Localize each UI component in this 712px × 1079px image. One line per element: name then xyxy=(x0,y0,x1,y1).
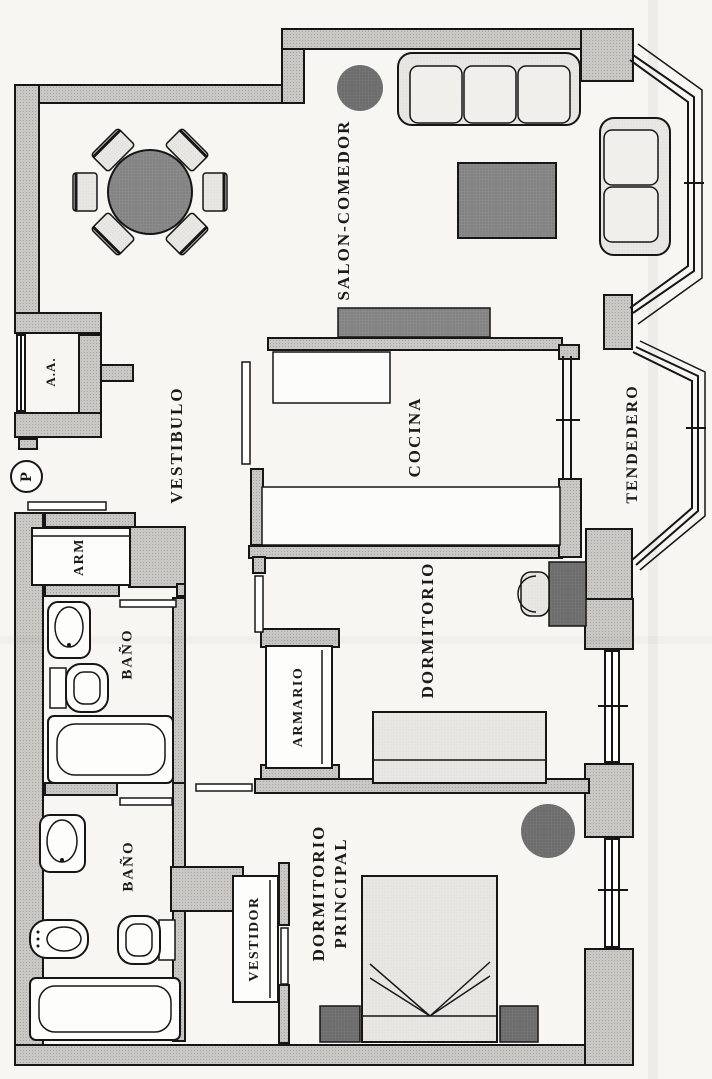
window-cocina-tendedero xyxy=(556,356,580,480)
label-aa-unit: A.A. xyxy=(43,357,59,386)
bathtub-symbol xyxy=(30,978,180,1040)
kitchen-counter-symbol xyxy=(273,352,390,403)
room-label-line: DORMITORIO xyxy=(308,825,330,962)
room-label-bano-upper: BAÑO xyxy=(120,628,137,679)
bathtub-symbol xyxy=(48,716,173,783)
toilet-symbol xyxy=(50,664,108,712)
label-vestidor: VESTIDOR xyxy=(247,896,263,981)
bed-double-symbol xyxy=(362,876,497,1042)
kitchen-counter-symbol xyxy=(262,487,560,545)
dining-table-symbol xyxy=(108,150,192,234)
entrance-badge: P xyxy=(10,460,43,493)
plant-symbol xyxy=(521,804,575,858)
room-label-cocina: COCINA xyxy=(405,397,425,478)
coffee-table-symbol xyxy=(458,163,556,238)
nightstand-symbol xyxy=(320,1006,360,1042)
label-arm-closet: ARM xyxy=(72,538,88,576)
sofa-two-seat-symbol xyxy=(600,118,670,255)
room-label-line: PRINCIPAL xyxy=(330,825,352,962)
sink-symbol xyxy=(40,815,85,872)
kitchen-sideboard-symbol xyxy=(338,308,490,337)
floor-plan: SALON-COMEDOR VESTIBULO COCINA TENDEDERO… xyxy=(0,0,712,1079)
room-label-bano-lower: BAÑO xyxy=(121,840,138,891)
nightstand-symbol xyxy=(500,1006,538,1042)
window-ticks xyxy=(598,706,628,890)
room-label-dormitorio-principal: DORMITORIO PRINCIPAL xyxy=(308,825,352,962)
room-label-salon-comedor: SALON-COMEDOR xyxy=(334,120,354,301)
desk-chair-symbol xyxy=(518,572,549,616)
toilet-symbol xyxy=(118,916,175,964)
label-armario: ARMARIO xyxy=(291,667,307,748)
bay-window-tendedero xyxy=(632,341,706,570)
plant-symbol xyxy=(337,65,383,111)
room-label-vestibulo: VESTIBULO xyxy=(167,386,187,503)
sink-symbol xyxy=(48,602,90,658)
furniture-layer xyxy=(0,0,712,1079)
room-label-dormitorio: DORMITORIO xyxy=(418,562,438,699)
bed-single-symbol xyxy=(373,712,546,783)
entrance-badge-letter: P xyxy=(18,472,36,482)
room-label-tendedero: TENDEDERO xyxy=(624,384,642,503)
desk-symbol xyxy=(549,562,586,626)
sofa-three-seat-symbol xyxy=(398,53,580,125)
bidet-symbol xyxy=(30,920,88,958)
